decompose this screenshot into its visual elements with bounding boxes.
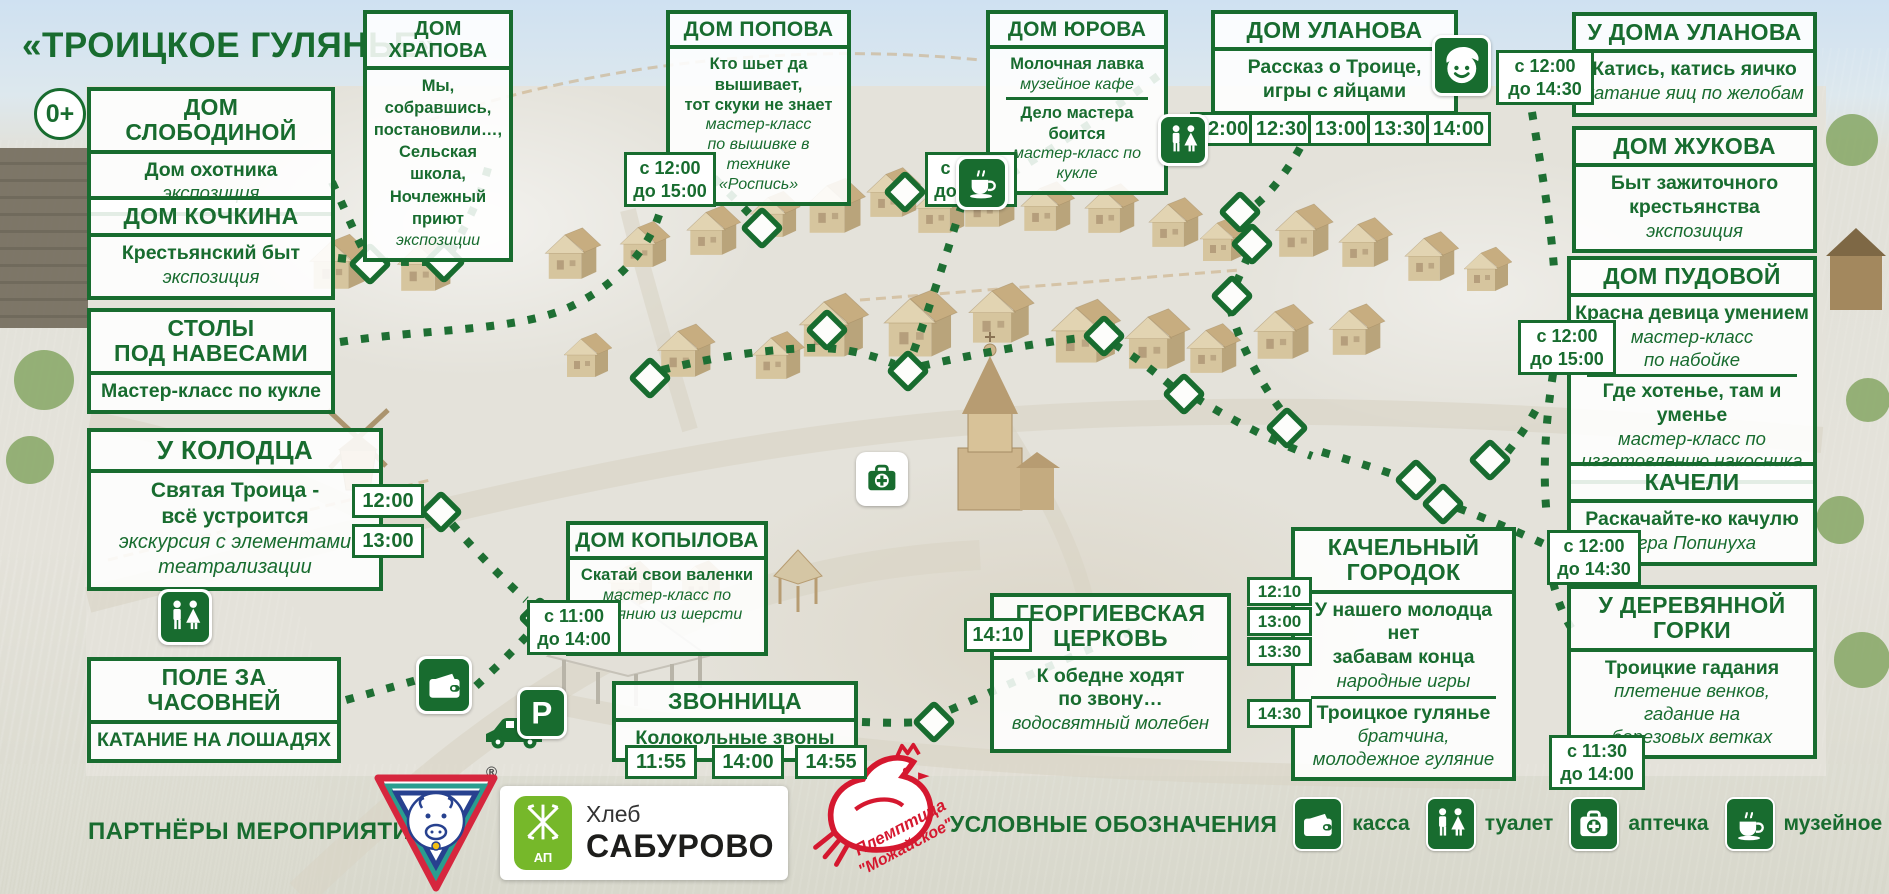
detail-divider (1587, 374, 1797, 377)
legend-item-coffee: музейное кафе (1725, 797, 1889, 851)
location-box-gorodok: КАЧЕЛЬНЫЙГОРОДОКУ нашего молодца нетзаба… (1291, 527, 1516, 781)
location-detail: экспозиции (371, 230, 505, 251)
location-title: ДОМ ПУДОВОЙ (1571, 260, 1813, 297)
location-details: Катись, катись яичкокатание яиц по желоб… (1576, 53, 1813, 111)
location-detail: Дело мастера боится (994, 103, 1160, 144)
location-title: ПОЛЕ ЗА ЧАСОВНЕЙ (91, 661, 337, 724)
saburovo-line2: САБУРОВО (586, 828, 775, 865)
firstaid-icon (1569, 797, 1619, 851)
time-chip-ulanova: 13:00 (1308, 112, 1373, 146)
location-details: Крестьянский бытэкспозиция (91, 237, 331, 295)
age-rating-badge: 0+ (34, 88, 86, 140)
time-chip-ulanova: 14:00 (1426, 112, 1491, 146)
location-detail: постановили…, (371, 119, 505, 141)
location-marker (1214, 278, 1251, 315)
photo-house-roof (1826, 228, 1886, 256)
saburovo-emblem-icon: АП (514, 796, 572, 870)
parking-icon: P (517, 687, 567, 739)
partner-logo-saburovo: АП Хлеб САБУРОВО (500, 786, 788, 880)
photo-house (1830, 252, 1882, 310)
hours-badge-gorki-hours: с 11:30до 14:00 (1549, 735, 1645, 790)
location-detail: водосвятный молебен (998, 712, 1223, 735)
time-chip-ulanova: 12:30 (1249, 112, 1314, 146)
detail-divider (1311, 696, 1496, 699)
wc-icon (1426, 797, 1476, 851)
location-detail: по звону… (998, 688, 1223, 712)
location-marker (890, 353, 927, 390)
location-title: ДОМ КОЧКИНА (91, 200, 331, 237)
kid-icon (1432, 35, 1491, 96)
location-detail: Дом охотника (95, 159, 327, 183)
location-detail: игры с яйцами (1219, 80, 1450, 104)
bush-illustration (1834, 632, 1889, 688)
house-illustration (1254, 304, 1314, 359)
location-detail: Рассказ о Троице, (1219, 56, 1450, 80)
coffee-icon (956, 156, 1008, 210)
location-details: Рассказ о Троице,игры с яйцами (1215, 51, 1454, 111)
location-marker (1472, 442, 1509, 479)
bush-illustration (1846, 378, 1889, 422)
wc-icon (1158, 114, 1208, 166)
location-detail: Троицкие гадания (1575, 657, 1809, 681)
time-chip-gorodok: 12:10 (1247, 577, 1312, 606)
fence-line (860, 270, 1240, 300)
legend-item-wallet: касса (1293, 797, 1409, 851)
house-illustration (1149, 198, 1203, 247)
location-detail: мастер-класс по (1575, 428, 1809, 451)
house-illustration (545, 228, 601, 279)
location-title: У КОЛОДЦА (91, 432, 379, 473)
location-detail: мастер-класс по кукле (994, 144, 1160, 184)
bush-illustration (1816, 496, 1864, 544)
house-illustration (687, 206, 741, 255)
wallet-icon (416, 656, 472, 714)
location-detail: Мастер-класс по кукле (95, 380, 327, 404)
location-title: ЗВОННИЦА (616, 685, 854, 722)
time-chip-gorodok: 13:00 (1247, 607, 1312, 636)
location-details: Мастер-класс по кукле (91, 375, 331, 411)
hours-badge-ulanova-yard-hours: с 12:00до 14:30 (1496, 50, 1594, 105)
time-chip-gorodok: 13:30 (1247, 637, 1312, 666)
location-marker (916, 704, 953, 741)
festival-map-poster: «ТРОИЦКОЕ ГУЛЯНЬЕ» 0+ ПАРТНЁРЫ МЕРОПРИЯТ… (0, 0, 1889, 894)
location-box-gorki: У ДЕРЕВЯННОЙГОРКИТроицкие гаданияплетени… (1567, 585, 1817, 759)
location-title: ДОМ ПОПОВА (670, 14, 847, 49)
location-detail: Мы, собравшись, (371, 75, 505, 119)
legend-label: музейное кафе (1784, 812, 1889, 836)
location-detail: гадание на (1575, 703, 1809, 726)
location-detail: тот скуки не знает (674, 95, 843, 115)
location-detail: Троицкое гулянье (1299, 702, 1508, 726)
legend-item-firstaid: аптечка (1569, 797, 1708, 851)
location-detail: Где хотенье, там и уменье (1575, 380, 1809, 428)
svg-text:P: P (532, 696, 553, 731)
location-detail: Катись, катись яичко (1580, 58, 1809, 82)
location-detail: Ночлежный приют (371, 186, 505, 230)
detail-divider (1006, 97, 1148, 100)
location-detail: Крестьянский быт (95, 242, 327, 266)
wc-icon (158, 589, 212, 645)
location-detail: мастер-класс (674, 115, 843, 135)
time-chip-kolodtsa: 12:00 (352, 484, 424, 518)
route-path (452, 524, 526, 600)
location-detail: Сельская школа, (371, 141, 505, 185)
location-detail: Молочная лавка (994, 54, 1160, 74)
route-path (862, 722, 920, 723)
time-chip-kolodtsa: 13:00 (352, 524, 424, 558)
location-details: К обедне ходятпо звону…водосвятный молеб… (994, 660, 1227, 742)
location-detail: всё устроится (95, 504, 375, 530)
bush-illustration (1826, 114, 1878, 166)
location-detail: катание яиц по желобам (1580, 82, 1809, 105)
location-box-kolodtsa: У КОЛОДЦАСвятая Троица -всё устроитсяэкс… (87, 428, 383, 591)
location-box-u-doma-ulanova: У ДОМА УЛАНОВАКатись, катись яичкокатани… (1572, 12, 1817, 117)
location-detail: У нашего молодца нет (1299, 599, 1508, 647)
route-path (1254, 148, 1300, 206)
saburovo-line1: Хлеб (586, 801, 775, 828)
legend-label: касса (1352, 812, 1409, 836)
location-box-pole: ПОЛЕ ЗА ЧАСОВНЕЙКАТАНИЕ НА ЛОШАДЯХ (87, 657, 341, 763)
location-detail: КАТАНИЕ НА ЛОШАДЯХ (95, 729, 333, 753)
bush-illustration (14, 350, 74, 410)
location-detail: молодежное гуляние (1299, 748, 1508, 771)
route-path (1545, 374, 1553, 518)
location-box-stoly: СТОЛЫПОД НАВЕСАМИМастер-класс по кукле (87, 308, 335, 414)
route-path (1532, 112, 1554, 268)
location-box-ulanova: ДОМ УЛАНОВАРассказ о Троице,игры с яйцам… (1211, 10, 1458, 115)
location-detail: театрализации (95, 555, 375, 580)
location-detail: братчина, (1299, 725, 1508, 748)
location-details: КАТАНИЕ НА ЛОШАДЯХ (91, 724, 337, 760)
location-detail: музейное кафе (994, 75, 1160, 95)
time-chip-tserkov: 14:10 (964, 618, 1032, 652)
location-box-khrapova: ДОМ ХРАПОВАМы, собравшись,постановили…,С… (363, 10, 513, 262)
location-detail: экспозиция (95, 266, 327, 289)
gazebo-illustration (774, 550, 822, 612)
house-illustration (1339, 218, 1393, 267)
house-illustration (753, 331, 805, 379)
hours-badge-kopylova-hours: с 11:00до 14:00 (527, 600, 621, 655)
hours-badge-kacheli-hours: с 12:00до 14:30 (1547, 530, 1641, 585)
location-details: У нашего молодца нетзабавам концанародны… (1295, 594, 1512, 778)
location-marker (1425, 486, 1462, 523)
location-details: Мы, собравшись,постановили…,Сельская шко… (367, 70, 509, 258)
time-chip-zvonnitsa: 11:55 (625, 745, 697, 779)
legend-label: туалет (1485, 812, 1554, 836)
legend: УСЛОВНЫЕ ОБОЗНАЧЕНИЯ касса туалет аптечк… (950, 797, 1889, 851)
wallet-icon (1293, 797, 1343, 851)
location-detail: Святая Троица - (95, 478, 375, 504)
location-detail: Скатай свои валенки (574, 565, 760, 585)
legend-title: УСЛОВНЫЕ ОБОЗНАЧЕНИЯ (950, 811, 1277, 838)
coffee-icon (1725, 797, 1775, 851)
partner-logo-dairy-triangle (372, 766, 500, 894)
time-chip-zvonnitsa: 14:00 (712, 745, 784, 779)
route-path (476, 630, 532, 686)
legend-label: аптечка (1628, 812, 1708, 836)
location-title: ДОМ ЮРОВА (990, 14, 1164, 49)
location-title: ДОМ УЛАНОВА (1215, 14, 1454, 51)
location-title: У ДОМА УЛАНОВА (1576, 16, 1813, 53)
location-detail: экспозиция (1580, 220, 1809, 243)
location-title: КАЧЕЛЬНЫЙГОРОДОК (1295, 531, 1512, 594)
house-illustration (1187, 324, 1241, 373)
time-chip-ulanova: 13:30 (1367, 112, 1432, 146)
location-detail: Быт зажиточного (1580, 172, 1809, 196)
location-box-kochkina: ДОМ КОЧКИНАКрестьянский бытэкспозиция (87, 196, 335, 300)
house-illustration (1464, 247, 1512, 291)
house-illustration (1405, 232, 1459, 281)
hours-badge-khrapova-hours: с 12:00до 15:00 (624, 152, 716, 207)
location-title: У ДЕРЕВЯННОЙГОРКИ (1571, 589, 1813, 652)
location-title: СТОЛЫПОД НАВЕСАМИ (91, 312, 331, 375)
firstaid-icon (856, 452, 908, 506)
location-title: КАЧЕЛИ (1571, 466, 1813, 503)
house-illustration (1329, 304, 1385, 355)
location-details: Святая Троица -всё устроитсяэкскурсия с … (91, 473, 379, 588)
location-detail: крестьянства (1580, 196, 1809, 220)
location-title: ДОМ СЛОБОДИНОЙ (91, 91, 331, 154)
location-detail: плетение венков, (1575, 680, 1809, 703)
location-detail: экскурсия с элементами (95, 530, 375, 555)
location-detail: Кто шьет да вышивает, (674, 54, 843, 95)
time-chip-gorodok: 14:30 (1247, 699, 1312, 728)
location-detail: Раскачайте-ко качулю (1575, 508, 1809, 532)
location-detail: народные игры (1299, 670, 1508, 693)
location-title: ДОМ ЖУКОВА (1576, 130, 1813, 167)
location-title: ДОМ ХРАПОВА (367, 14, 509, 70)
house-illustration (564, 333, 612, 377)
time-chip-zvonnitsa: 14:55 (795, 745, 867, 779)
location-title: ДОМ КОПЫЛОВА (570, 525, 764, 560)
location-detail: К обедне ходят (998, 665, 1223, 689)
house-illustration (884, 290, 957, 357)
location-box-tserkov: ГЕОРГИЕВСКАЯЦЕРКОВЬК обедне ходятпо звон… (990, 593, 1231, 753)
route-path (1322, 452, 1403, 478)
location-detail: забавам конца (1299, 646, 1508, 670)
legend-item-wc: туалет (1426, 797, 1554, 851)
bush-illustration (6, 436, 54, 484)
location-box-zhukova: ДОМ ЖУКОВАБыт зажиточногокрестьянстваэкс… (1572, 126, 1817, 253)
hours-badge-pudovoy-hours: с 12:00до 15:00 (1518, 320, 1616, 375)
location-marker (1398, 462, 1435, 499)
house-illustration (1276, 204, 1334, 257)
saburovo-ap-label: АП (534, 850, 553, 865)
location-details: Быт зажиточногокрестьянстваэкспозиция (1576, 167, 1813, 249)
